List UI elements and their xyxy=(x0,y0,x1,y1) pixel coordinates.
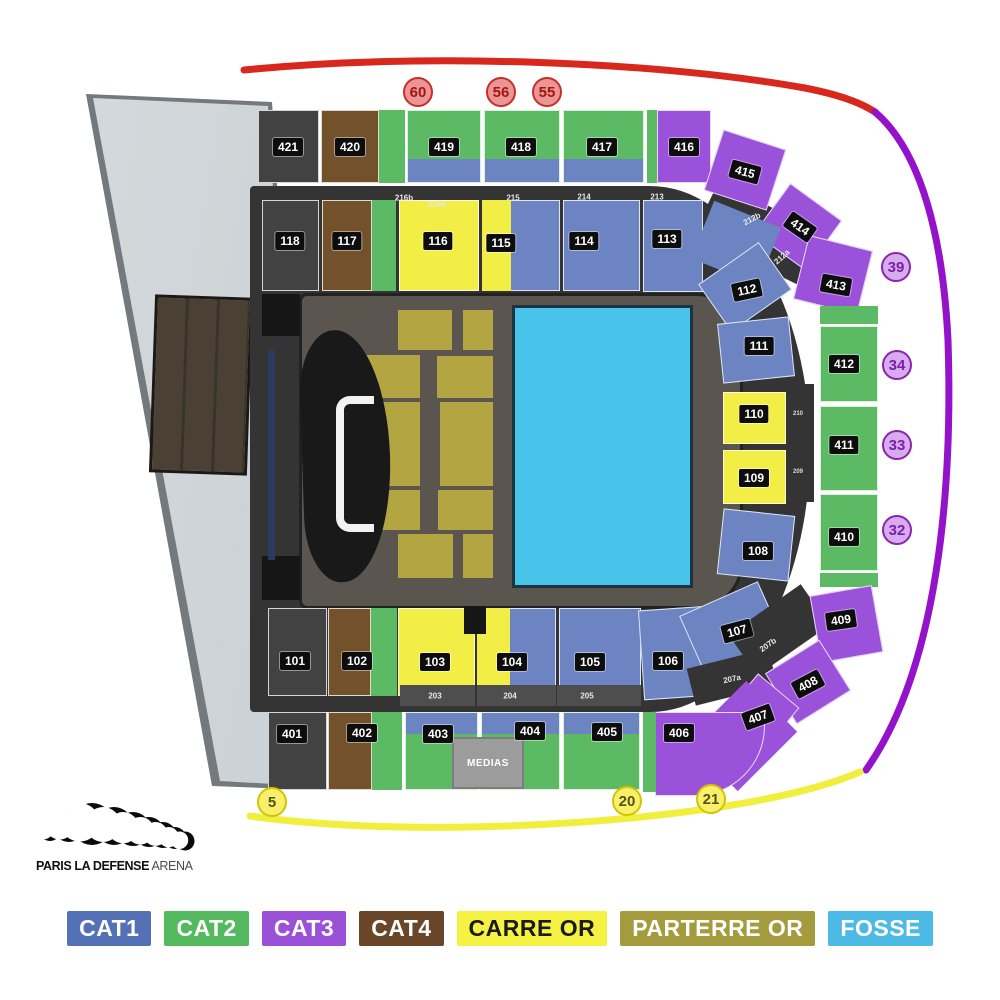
logo-text-arena: ARENA xyxy=(151,859,192,873)
legend-carre-or: CARRE OR xyxy=(457,911,608,946)
logo-text-bold: PARIS LA DEFENSE xyxy=(36,859,149,873)
logo-fins-icon xyxy=(36,788,206,860)
legend-fosse: FOSSE xyxy=(828,911,932,946)
gate-55: 55 xyxy=(532,77,562,107)
gate-5: 5 xyxy=(257,787,287,817)
gate-32: 32 xyxy=(882,515,912,545)
legend-parterre-or: PARTERRE OR xyxy=(620,911,815,946)
venue-logo: PARIS LA DEFENSE ARENA xyxy=(36,788,216,873)
legend-cat3: CAT3 xyxy=(262,911,346,946)
legend-cat4: CAT4 xyxy=(359,911,443,946)
venue-logo-text: PARIS LA DEFENSE ARENA xyxy=(36,859,216,873)
gate-34: 34 xyxy=(882,350,912,380)
gate-21: 21 xyxy=(696,784,726,814)
gate-20: 20 xyxy=(612,786,642,816)
legend-cat1: CAT1 xyxy=(67,911,151,946)
gate-39: 39 xyxy=(881,252,911,282)
legend-cat2: CAT2 xyxy=(164,911,248,946)
gate-33: 33 xyxy=(882,430,912,460)
category-legend: CAT1CAT2CAT3CAT4CARRE ORPARTERRE ORFOSSE xyxy=(0,911,1000,946)
gate-56: 56 xyxy=(486,77,516,107)
gate-60: 60 xyxy=(403,77,433,107)
seating-map: MEDIAS 421420419418417416415414413118117… xyxy=(0,0,1000,1000)
